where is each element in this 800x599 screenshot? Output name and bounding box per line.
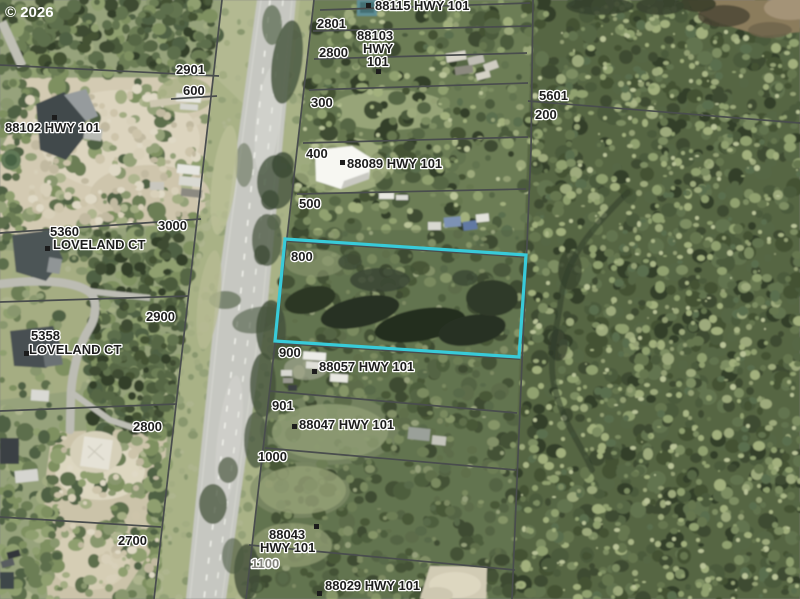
svg-text:2901: 2901 [176,62,205,77]
svg-text:LOVELAND CT: LOVELAND CT [29,342,122,357]
svg-text:88102 HWY 101: 88102 HWY 101 [5,120,100,135]
svg-text:88089 HWY 101: 88089 HWY 101 [347,156,442,171]
svg-text:2801: 2801 [317,16,346,31]
svg-text:500: 500 [299,196,321,211]
svg-text:5601: 5601 [539,88,568,103]
svg-text:400: 400 [306,146,328,161]
svg-text:3000: 3000 [158,218,187,233]
svg-text:2900: 2900 [146,309,175,324]
svg-text:5358: 5358 [31,328,60,343]
svg-text:600: 600 [183,83,205,98]
svg-text:900: 900 [279,345,301,360]
svg-text:800: 800 [291,249,313,264]
svg-text:88057 HWY 101: 88057 HWY 101 [319,359,414,374]
svg-text:2800: 2800 [319,45,348,60]
svg-text:200: 200 [535,107,557,122]
svg-text:101: 101 [367,54,389,69]
svg-text:300: 300 [311,95,333,110]
svg-text:LOVELAND CT: LOVELAND CT [53,237,146,252]
svg-text:88115 HWY 101: 88115 HWY 101 [375,0,469,13]
